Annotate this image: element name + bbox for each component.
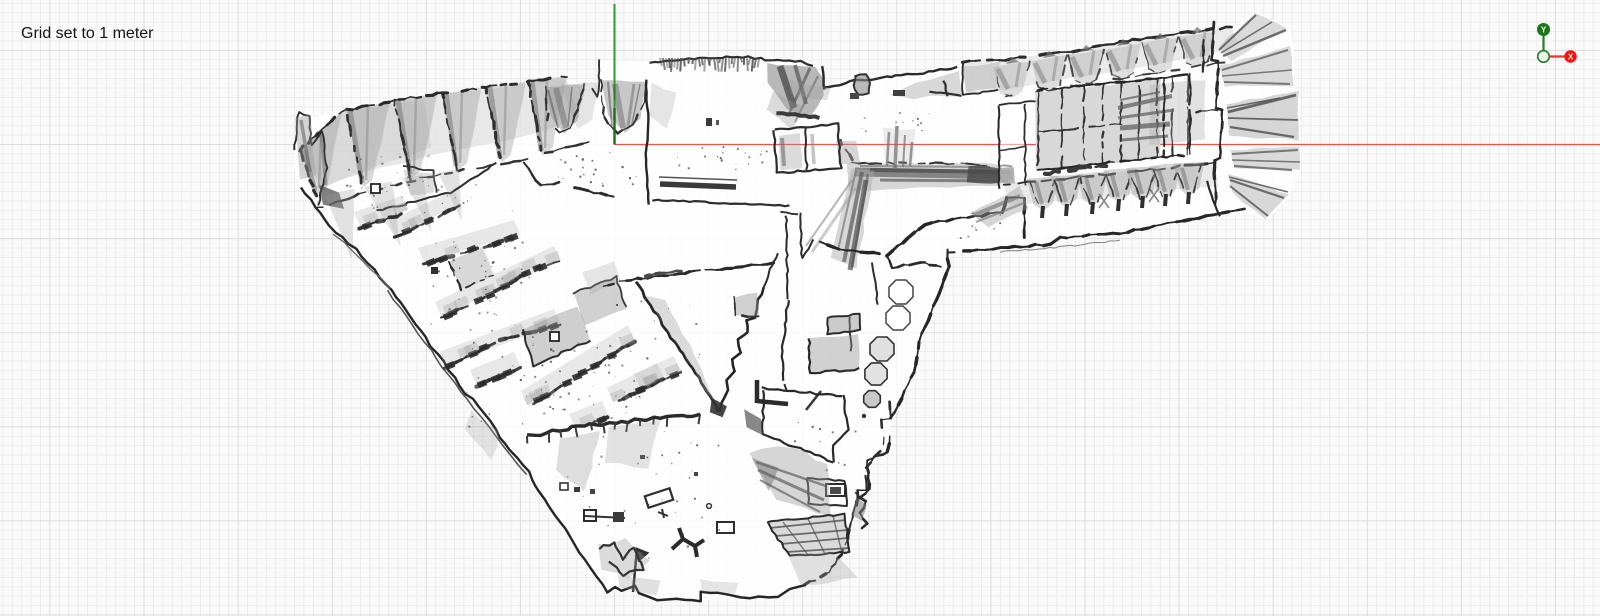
svg-text:X: X [1568, 52, 1574, 61]
svg-text:Y: Y [1541, 25, 1547, 34]
